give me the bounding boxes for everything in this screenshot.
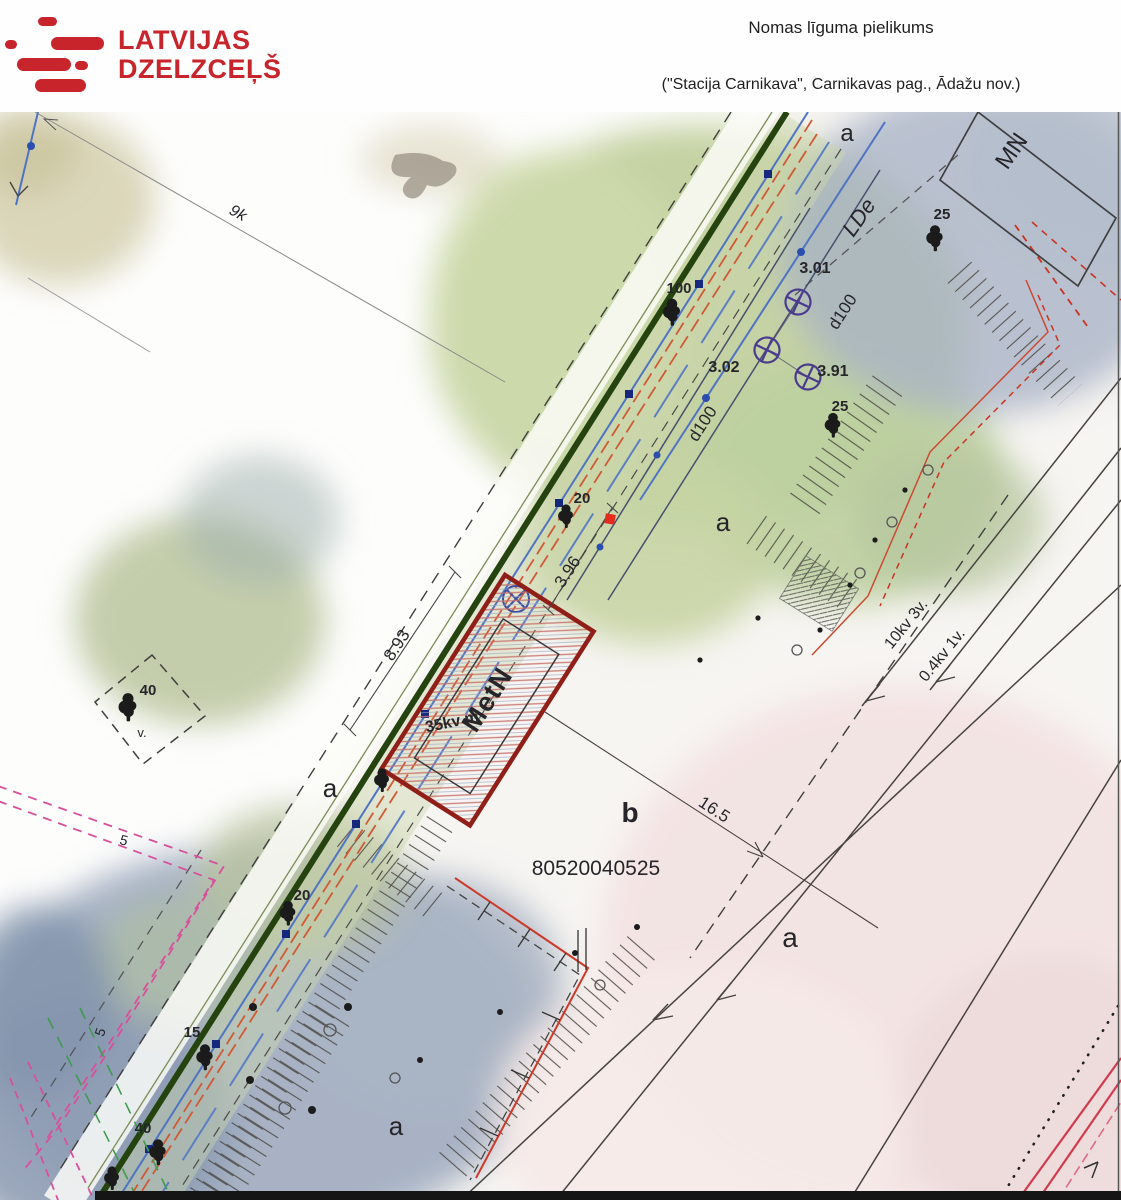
red-survey-marker bbox=[604, 513, 616, 525]
scanned-lease-plan-page: a a a a a b 80520040525 MN LDe d100 d100… bbox=[0, 0, 1121, 1200]
label-tree-20b: 20 bbox=[294, 887, 311, 904]
label-well-301: 3.01 bbox=[799, 260, 830, 277]
label-tree-25b: 25 bbox=[832, 398, 849, 415]
label-zone-a-mid: a bbox=[716, 507, 731, 537]
label-well-391: 3.91 bbox=[817, 363, 848, 380]
label-tree-20a: 20 bbox=[574, 490, 591, 507]
label-tree-note-v: v. bbox=[137, 725, 146, 740]
label-tree-25a: 25 bbox=[934, 206, 951, 223]
logo-word-2: DZELZCEĻŠ bbox=[118, 55, 282, 84]
document-title: Nomas līguma pielikums bbox=[581, 18, 1101, 38]
label-zone-b: b bbox=[621, 797, 638, 828]
site-plan-map: a a a a a b 80520040525 MN LDe d100 d100… bbox=[0, 0, 1121, 1200]
latvijas-dzelzcels-logo-icon: LATVIJAS DZELZCEĻŠ bbox=[0, 0, 300, 105]
label-zone-a-top: a bbox=[840, 120, 854, 147]
document-subtitle: ("Stacija Carnikava", Carnikavas pag., Ā… bbox=[581, 76, 1101, 94]
logo-word-1: LATVIJAS bbox=[118, 26, 282, 55]
label-zone-a-right: a bbox=[782, 922, 798, 953]
document-header: LATVIJAS DZELZCEĻŠ Nomas līguma pielikum… bbox=[0, 0, 1121, 112]
label-tree-40b: 40 bbox=[135, 1120, 152, 1137]
label-zone-a-left: a bbox=[323, 773, 338, 803]
label-tree-40a: 40 bbox=[140, 682, 157, 699]
label-parcel-number: 80520040525 bbox=[532, 857, 660, 880]
label-tree-100: 100 bbox=[666, 280, 691, 297]
label-well-302: 3.02 bbox=[708, 359, 739, 376]
label-zone-a-bottom: a bbox=[389, 1111, 404, 1141]
scan-edge-bar bbox=[95, 1191, 1121, 1200]
label-tree-15: 15 bbox=[184, 1024, 201, 1041]
